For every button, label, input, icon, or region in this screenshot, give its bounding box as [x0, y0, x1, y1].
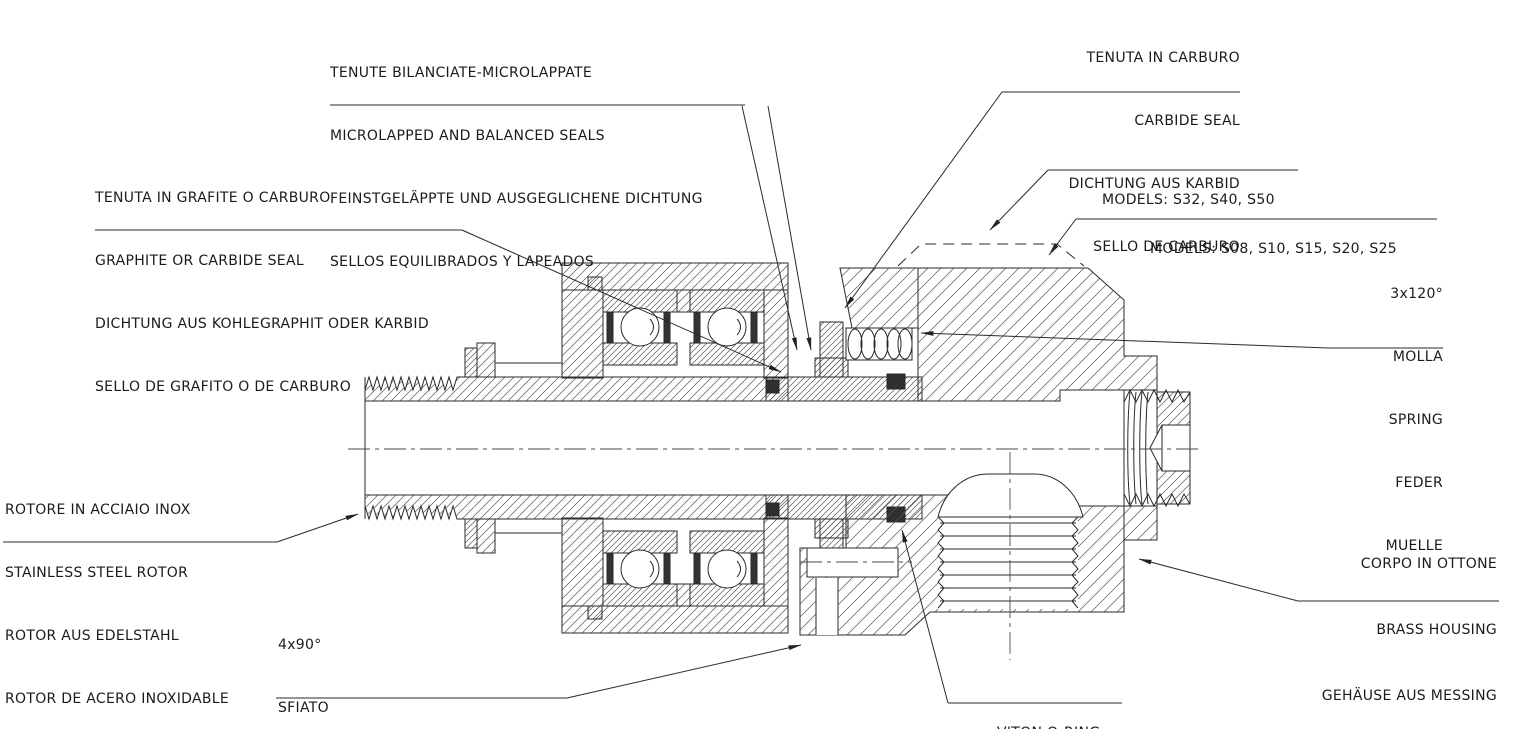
label-line: GRAPHITE OR CARBIDE SEAL [95, 251, 429, 272]
label-graphite-seal: TENUTA IN GRAFITE O CARBURO GRAPHITE OR … [95, 146, 429, 440]
label-rotor: ROTORE IN ACCIAIO INOX STAINLESS STEEL R… [5, 458, 229, 729]
alternate-model-dashed-outline [898, 244, 1084, 266]
spring [846, 328, 912, 360]
label-line: GEHÄUSE AUS MESSING [1322, 685, 1497, 707]
label-models-small: MODELS: S08, S10, S15, S20, S25 [1150, 197, 1397, 302]
label-line: 3x120° [1386, 284, 1443, 305]
housing-port [938, 474, 1083, 609]
engineering-drawing-page: TENUTE BILANCIATE-MICROLAPPATE MICROLAPP… [0, 0, 1536, 729]
label-line: ROTOR DE ACERO INOXIDABLE [5, 689, 229, 710]
label-line: ROTOR AUS EDELSTAHL [5, 626, 229, 647]
hex-socket [1162, 425, 1190, 471]
label-line: FEDER [1386, 473, 1443, 494]
label-vent-hole: 4x90° SFIATO VENT HOLE ENTLASTUNGSÖFFNUN… [278, 593, 456, 729]
label-line: CARBIDE SEAL [1069, 111, 1240, 132]
label-line: MICROLAPPED AND BALANCED SEALS [330, 126, 703, 147]
label-line: SELLO DE GRAFITO O DE CARBURO [95, 377, 429, 398]
label-line: MOLLA [1386, 347, 1443, 368]
label-line: MODELS: S08, S10, S15, S20, S25 [1150, 239, 1397, 260]
label-viton-o-ring: VITON O-RING [997, 681, 1100, 729]
ball-bearings [603, 290, 764, 606]
label-line: TENUTA IN CARBURO [1069, 48, 1240, 69]
label-line: CORPO IN OTTONE [1322, 553, 1497, 575]
label-line: TENUTA IN GRAFITE O CARBURO [95, 188, 429, 209]
label-line: BRASS HOUSING [1322, 619, 1497, 641]
label-line: TENUTE BILANCIATE-MICROLAPPATE [330, 63, 703, 84]
label-line: DICHTUNG AUS KOHLEGRAPHIT ODER KARBID [95, 314, 429, 335]
label-line: VITON O-RING [997, 723, 1100, 729]
label-line: ROTORE IN ACCIAIO INOX [5, 500, 229, 521]
label-line: 4x90° [278, 635, 456, 656]
label-line: SPRING [1386, 410, 1443, 431]
label-brass-housing: CORPO IN OTTONE BRASS HOUSING GEHÄUSE AU… [1322, 509, 1497, 729]
label-line: STAINLESS STEEL ROTOR [5, 563, 229, 584]
threaded-nipple [1124, 390, 1190, 506]
label-line: SFIATO [278, 698, 456, 719]
